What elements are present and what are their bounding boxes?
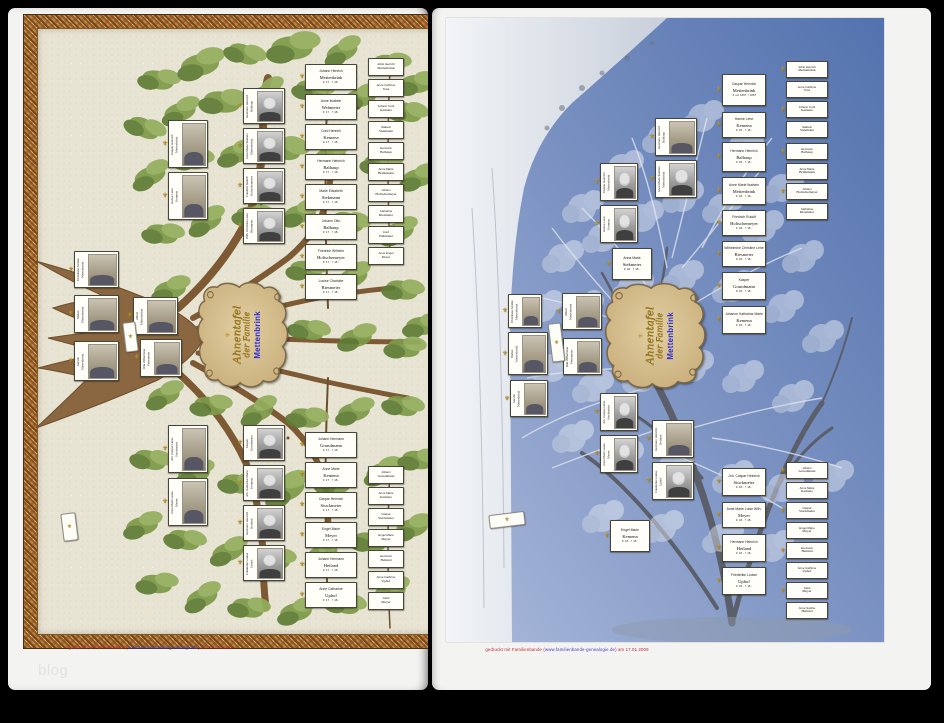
plaque-title-line2: der Familie bbox=[243, 287, 252, 383]
print-caption: gedruckt mit Familienbande (www.familien… bbox=[482, 647, 652, 652]
family-name-plaque: ⚜ Ahnentafel der Familie Mettenbrink bbox=[603, 283, 710, 389]
plaque-title-line2: der Familie bbox=[656, 286, 665, 386]
familienbande-url: www.familienbande-genealogie.de bbox=[128, 645, 198, 650]
right-page: ⚜Christiane AmelieMettenbrink⚜StefanMett… bbox=[432, 8, 931, 690]
family-name-plaque: ⚜ Ahnentafel der Familie Mettenbrink bbox=[196, 282, 292, 388]
left-page: blog bbox=[8, 8, 428, 690]
plaque-family-name: Mettenbrink bbox=[254, 287, 263, 383]
print-caption: gedruckt mit Familienbande (www.familien… bbox=[60, 645, 240, 650]
plaque-family-name: Mettenbrink bbox=[666, 286, 675, 386]
plaque-title-line1: Ahnentafel bbox=[645, 286, 656, 386]
screenshot-canvas: blog bbox=[0, 0, 944, 723]
familienbande-url: www.familienbande-genealogie.de bbox=[545, 647, 615, 652]
